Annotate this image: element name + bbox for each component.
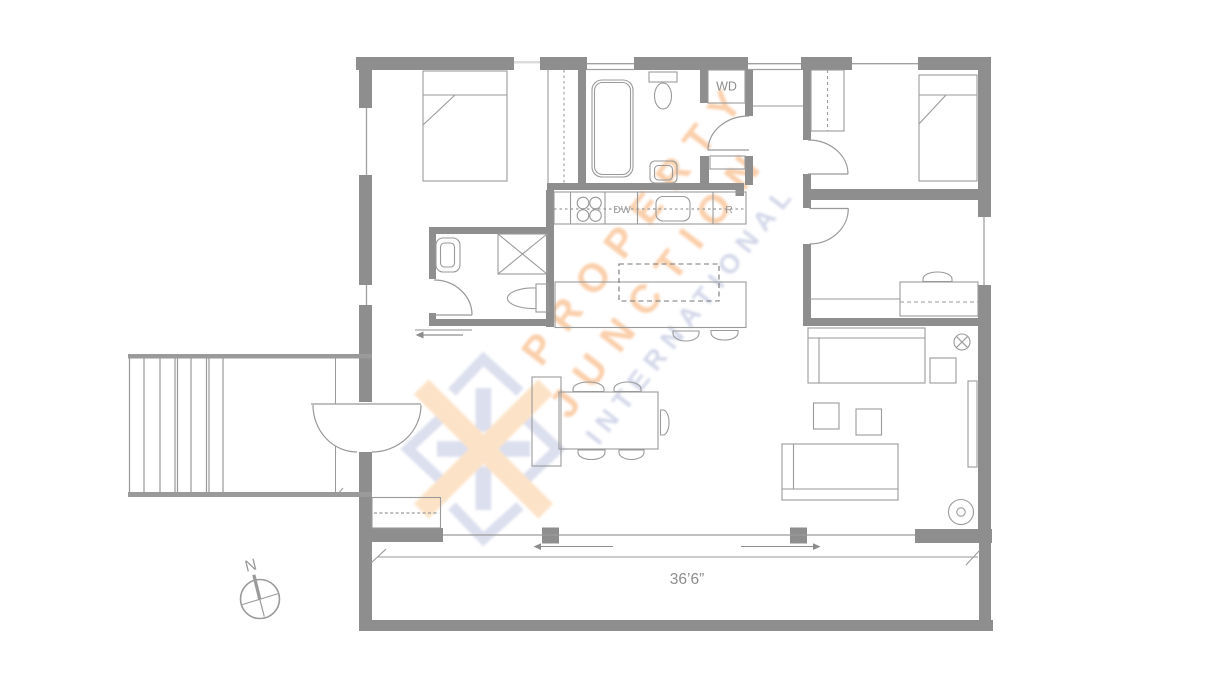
svg-text:R: R (725, 204, 733, 216)
svg-text:WD: WD (716, 80, 737, 94)
svg-text:36’6”: 36’6” (670, 571, 704, 588)
svg-text:DW: DW (613, 204, 631, 216)
svg-text:N: N (243, 556, 258, 575)
